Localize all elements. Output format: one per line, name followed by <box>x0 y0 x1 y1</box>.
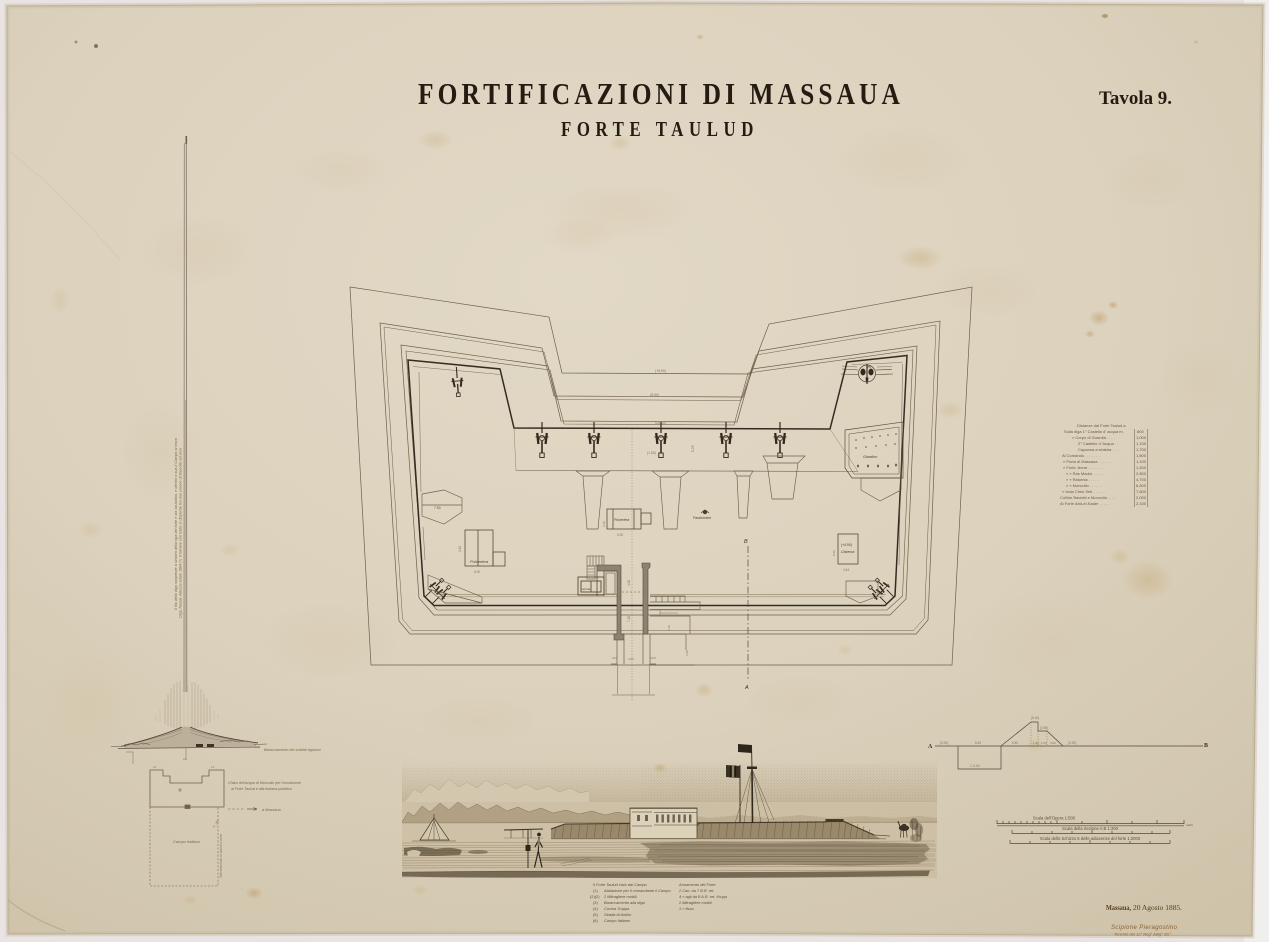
svg-text:7.10: 7.10 <box>627 616 631 622</box>
svg-text:1,400: 1,400 <box>1136 465 1147 470</box>
svg-text:1,100: 1,100 <box>1136 459 1147 464</box>
svg-text:2° Castello d' Acqua . .: 2° Castello d' Acqua . . <box>1078 441 1118 446</box>
svg-text:(3.90): (3.90) <box>1040 726 1048 730</box>
svg-text:« Forte Jerrar . . . .: « Forte Jerrar . . . . . . . <box>1063 465 1103 470</box>
svg-text:(1.80): (1.80) <box>647 451 656 455</box>
svg-text:1.90: 1.90 <box>1033 741 1039 745</box>
svg-text:4.40: 4.40 <box>685 650 689 656</box>
svg-text:800: 800 <box>1137 429 1144 434</box>
svg-text:12: 12 <box>153 765 157 769</box>
svg-text:« Porta di Massaua . . .: « Porta di Massaua . . . . . . <box>1063 459 1111 464</box>
svg-text:« Corpo di Guardia . .: « Corpo di Guardia . . . . <box>1072 435 1115 440</box>
svg-text:Scala dell'Opera 1:500: Scala dell'Opera 1:500 <box>1033 816 1076 821</box>
svg-text:8.40: 8.40 <box>975 741 981 745</box>
svg-text:2.20: 2.20 <box>602 521 606 527</box>
svg-text:Capanna a sinistra . . .: Capanna a sinistra . . . <box>1078 447 1118 452</box>
svg-text:FORTIFICAZIONI DI MASSAUA: FORTIFICAZIONI DI MASSAUA <box>418 76 904 111</box>
svg-text:Al Forte Abd-el-Kader . .: Al Forte Abd-el-Kader . . . . . <box>1060 501 1110 506</box>
svg-text:(5): (5) <box>593 912 598 917</box>
svg-text:4.00: 4.00 <box>627 580 631 586</box>
svg-text:Baraccamento alla diga: Baraccamento alla diga <box>604 900 645 905</box>
svg-text:Campo Italiano: Campo Italiano <box>604 918 631 923</box>
svg-text:1,000: 1,000 <box>1136 435 1147 440</box>
svg-text:(6): (6) <box>593 918 598 923</box>
svg-text:1,600: 1,600 <box>1136 453 1147 458</box>
svg-text:(0.00): (0.00) <box>1068 741 1076 745</box>
svg-text:Il Forte Taulud visto dal Camp: Il Forte Taulud visto dal Campo <box>593 882 648 887</box>
svg-text:Sulla diga 1° Castello d' acq: Sulla diga 1° Castello d' acqua m. <box>1064 429 1124 434</box>
svg-text:A: A <box>928 744 933 750</box>
svg-text:Al Comando . . . .: Al Comando . . . . . . . <box>1062 453 1100 458</box>
svg-text:20 Agosto 1885.: 20 Agosto 1885. <box>1133 903 1182 912</box>
svg-text:Diga Taulud. Altezza totale 18: Diga Taulud. Altezza totale 1884 m. Il f… <box>179 448 183 618</box>
svg-text:Scipione Pieragostino: Scipione Pieragostino <box>1111 925 1178 931</box>
svg-text:« « Ras Madur . . .: « « Ras Madur . . . . . <box>1066 471 1103 476</box>
svg-text:Tavola 9.: Tavola 9. <box>1099 89 1172 109</box>
svg-text:(1): (1) <box>593 888 598 893</box>
svg-text:4 « agli da 8 A.R. ret. K: 4 « agli da 8 A.R. ret. Krupp <box>679 894 728 899</box>
svg-text:Massaua,: Massaua, <box>1106 903 1131 912</box>
svg-text:(+4.90): (+4.90) <box>841 543 852 547</box>
svg-text:6.25: 6.25 <box>691 445 695 452</box>
svg-text:Scala della Sezione A B 1:: Scala della Sezione A B 1:200 <box>1062 826 1119 831</box>
svg-text:12: 12 <box>211 765 215 769</box>
svg-text:Baraccamento dei soldati egizi: Baraccamento dei soldati egiziani <box>264 748 321 752</box>
svg-text:1 « fissa: 1 « fissa <box>679 906 694 911</box>
svg-text:6.40: 6.40 <box>667 625 671 631</box>
svg-text:Tenente del 12° Reg° Artig° di: Tenente del 12° Reg° Artig° dis°. <box>1114 932 1172 937</box>
svg-text:Polveriera: Polveriera <box>614 518 629 522</box>
svg-text:Parafulmine: Parafulmine <box>693 516 711 520</box>
svg-text:4.44: 4.44 <box>843 568 849 572</box>
svg-text:6,500: 6,500 <box>1136 483 1147 488</box>
svg-text:Cisterna: Cisterna <box>841 550 854 554</box>
svg-text:Polveriera: Polveriera <box>470 559 489 564</box>
svg-text:2 Mitragliere mobili: 2 Mitragliere mobili <box>603 894 637 899</box>
svg-text:2,000: 2,000 <box>1136 495 1147 500</box>
svg-text:1.50: 1.50 <box>1041 741 1047 745</box>
svg-text:4,700: 4,700 <box>1136 477 1147 482</box>
svg-text:(4): (4) <box>593 906 598 911</box>
svg-text:(+8.90): (+8.90) <box>655 369 666 373</box>
svg-text:6.00: 6.00 <box>474 570 480 574</box>
svg-text:B: B <box>744 539 748 545</box>
svg-text:1,700: 1,700 <box>1136 447 1147 452</box>
svg-text:16: 16 <box>183 757 187 761</box>
svg-text:« « Moncullo . . .: « « Moncullo . . . . . . <box>1066 483 1102 488</box>
svg-text:4.40: 4.40 <box>458 546 462 552</box>
svg-text:Cucina Truppa: Cucina Truppa <box>604 906 630 911</box>
svg-text:Strada di Arkiko: Strada di Arkiko <box>604 912 632 917</box>
svg-text:7,600: 7,600 <box>1136 489 1147 494</box>
svg-text:7.50: 7.50 <box>434 506 441 510</box>
svg-text:8.00: 8.00 <box>832 550 836 556</box>
svg-text:(0.00): (0.00) <box>940 741 948 745</box>
svg-text:Campo Italiano: Campo Italiano <box>173 839 201 844</box>
svg-text:(24.90): (24.90) <box>655 421 666 425</box>
svg-text:« « Ratumia . . .: « « Ratumia . . . . . <box>1066 477 1099 482</box>
svg-text:6.40: 6.40 <box>1012 741 1018 745</box>
svg-text:3.00: 3.00 <box>1050 741 1056 745</box>
svg-text:5.30: 5.30 <box>617 533 623 537</box>
svg-text:Colline Baviotti e Moncullo .: Colline Baviotti e Moncullo . . . . <box>1060 495 1116 500</box>
svg-text:al Forte Taulud e alla fontana: al Forte Taulud e alla fontana pubblica <box>231 787 292 791</box>
svg-text:a Massaua: a Massaua <box>262 808 281 812</box>
svg-text:A: A <box>744 685 749 691</box>
svg-text:Distanze dal Forte Taulud: Distanze dal Forte Taulud a <box>1077 423 1126 428</box>
svg-text:Scala dello Schizzo 5 delle: Scala dello Schizzo 5 delle adiacenze de… <box>1040 836 1141 841</box>
svg-text:(2)(2): (2)(2) <box>590 894 600 899</box>
svg-text:2 Can. da 7 B.R. ret.: 2 Can. da 7 B.R. ret. <box>678 888 714 893</box>
svg-text:(8.50): (8.50) <box>650 393 659 397</box>
svg-text:(3): (3) <box>593 900 598 905</box>
svg-text:1,100: 1,100 <box>1136 441 1147 446</box>
svg-text:Trinceramento in sacchi a terr: Trinceramento in sacchi a terra <box>219 834 223 878</box>
svg-text:Latrina: Latrina <box>581 587 591 591</box>
svg-text:Chiavi dell'acqua di Moncullo: Chiavi dell'acqua di Moncullo per l'immi… <box>228 781 301 785</box>
svg-text:FORTE TAULUD: FORTE TAULUD <box>561 117 759 141</box>
svg-text:2,800: 2,800 <box>1136 471 1147 476</box>
svg-text:2 Mitragliere mobili: 2 Mitragliere mobili <box>678 900 712 905</box>
svg-text:(6.40): (6.40) <box>1031 716 1039 720</box>
svg-text:metri: metri <box>1186 823 1193 827</box>
svg-text:Abitazione per il comandante i: Abitazione per il comandante il Campo <box>603 888 671 893</box>
svg-text:Il filo della diga sospende a: Il filo della diga sospende a sinistra d… <box>174 438 178 610</box>
svg-text:« Isola Chek Seit . . . .: « Isola Chek Seit . . . . . . <box>1062 489 1106 494</box>
svg-text:1-3.00: 1-3.00 <box>970 764 980 768</box>
svg-text:Armamento del Forte: Armamento del Forte <box>678 882 716 887</box>
svg-text:4.00: 4.00 <box>628 657 634 661</box>
svg-text:B: B <box>1204 743 1208 749</box>
svg-text:Giardino: Giardino <box>863 455 877 459</box>
svg-text:2,100: 2,100 <box>1136 501 1147 506</box>
